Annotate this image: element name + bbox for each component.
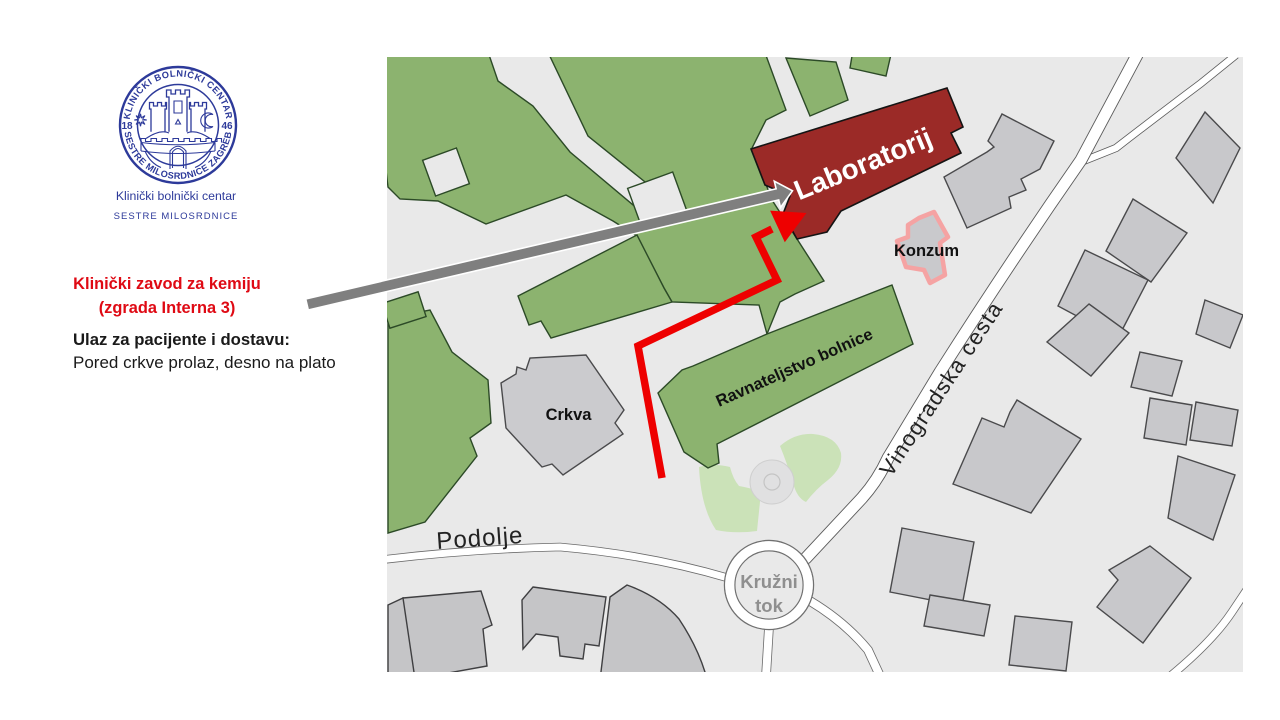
svg-text:KLINIČKI BOLNIČKI CENTAR: KLINIČKI BOLNIČKI CENTAR xyxy=(122,68,234,120)
svg-text:Kružni: Kružni xyxy=(740,571,798,592)
svg-text:tok: tok xyxy=(755,595,783,616)
svg-text:Crkva: Crkva xyxy=(546,406,593,424)
svg-text:Konzum: Konzum xyxy=(894,242,959,260)
svg-text:46: 46 xyxy=(222,121,234,132)
svg-text:18: 18 xyxy=(122,121,134,132)
